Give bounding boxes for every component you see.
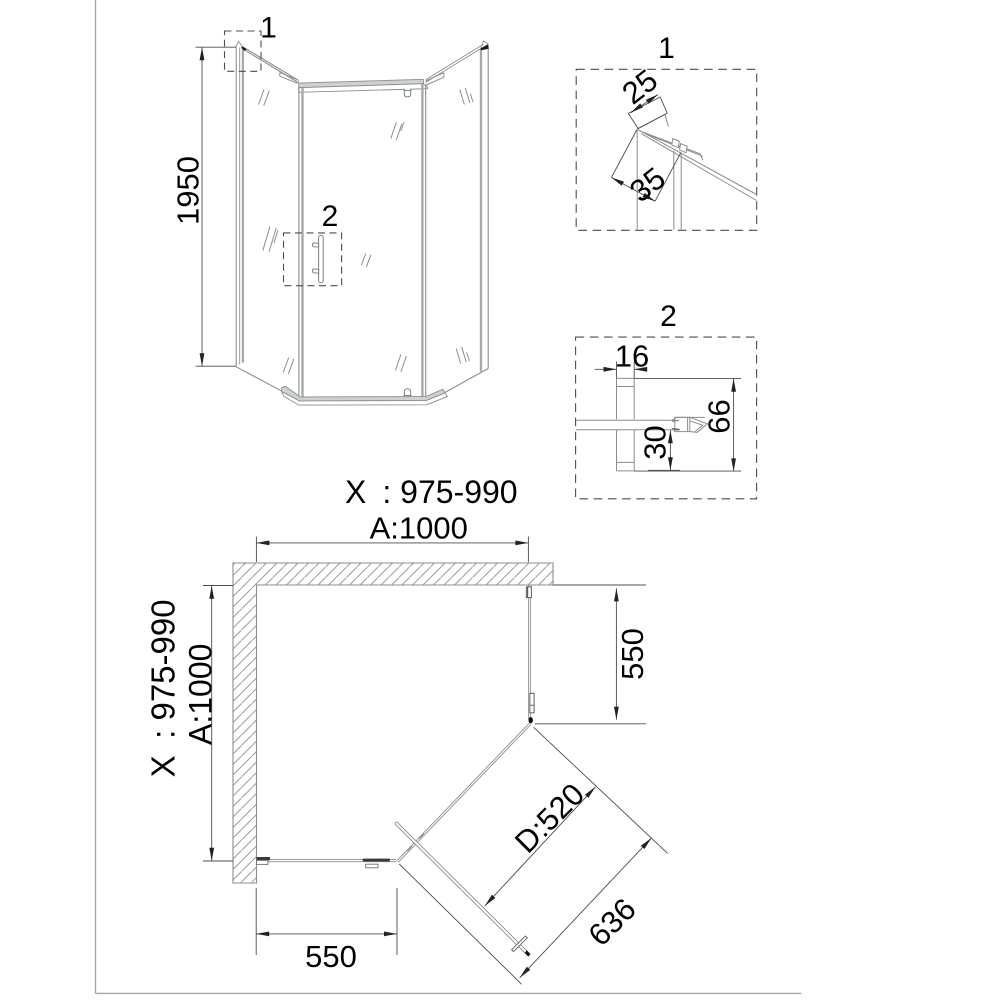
svg-text:A:1000: A:1000 bbox=[183, 644, 219, 745]
svg-text:2: 2 bbox=[322, 200, 339, 233]
svg-text:2: 2 bbox=[660, 300, 677, 333]
svg-text:16: 16 bbox=[615, 339, 649, 374]
svg-text:X : 975-990: X : 975-990 bbox=[345, 474, 518, 510]
svg-text:30: 30 bbox=[638, 425, 673, 459]
svg-text:1950: 1950 bbox=[171, 156, 206, 225]
svg-text:A:1000: A:1000 bbox=[370, 511, 468, 546]
svg-text:1: 1 bbox=[658, 32, 675, 65]
svg-text:X : 975-990: X : 975-990 bbox=[145, 599, 182, 777]
svg-text:D:520: D:520 bbox=[508, 776, 591, 859]
svg-text:1: 1 bbox=[260, 12, 277, 45]
svg-text:636: 636 bbox=[581, 891, 642, 952]
svg-text:66: 66 bbox=[702, 399, 737, 433]
svg-text:35: 35 bbox=[623, 160, 672, 209]
svg-text:550: 550 bbox=[305, 939, 357, 974]
svg-text:550: 550 bbox=[615, 628, 650, 680]
